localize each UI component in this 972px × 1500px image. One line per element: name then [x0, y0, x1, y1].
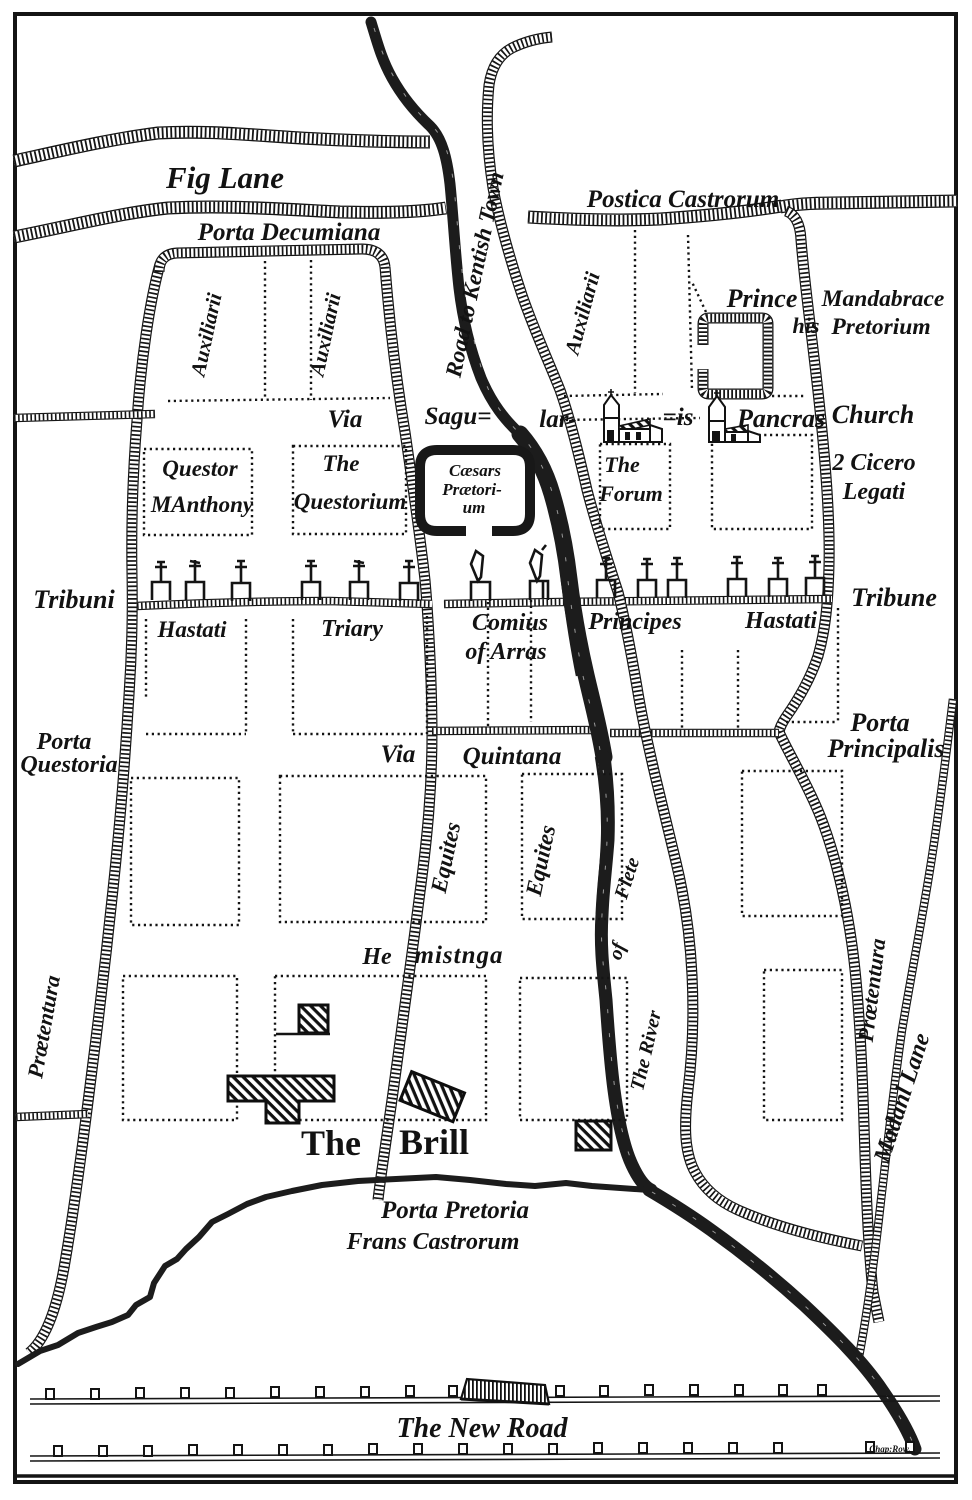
svg-text:Prætori-: Prætori- — [441, 480, 502, 499]
svg-text:Porta: Porta — [849, 708, 909, 737]
svg-text:Tribuni: Tribuni — [33, 585, 115, 614]
svg-text:=is: =is — [663, 404, 694, 431]
svg-text:Porta Pretoria: Porta Pretoria — [380, 1197, 529, 1224]
svg-text:Cæsars: Cæsars — [449, 461, 501, 480]
svg-text:Pretorium: Pretorium — [830, 314, 930, 340]
svg-text:He: He — [361, 944, 392, 970]
svg-text:Prince: Prince — [726, 284, 798, 313]
svg-text:2 Cicero: 2 Cicero — [831, 450, 915, 476]
svg-text:um: um — [463, 498, 486, 517]
svg-text:Sagu=: Sagu= — [424, 403, 491, 430]
svg-text:Frans Castrorum: Frans Castrorum — [346, 1229, 520, 1255]
svg-text:MAnthony: MAnthony — [150, 492, 254, 517]
svg-text:The New Road: The New Road — [396, 1413, 568, 1444]
svg-text:Fig Lane: Fig Lane — [165, 160, 284, 195]
svg-text:Questoria: Questoria — [20, 752, 117, 778]
svg-text:The: The — [322, 451, 359, 476]
svg-text:Church: Church — [832, 400, 914, 429]
svg-text:Brill: Brill — [399, 1122, 469, 1162]
svg-text:Postica Castrorum: Postica Castrorum — [586, 186, 779, 213]
svg-text:Comius: Comius — [472, 610, 548, 636]
svg-text:his: his — [793, 313, 820, 338]
svg-text:Tribune: Tribune — [851, 583, 937, 612]
svg-text:The: The — [301, 1123, 361, 1163]
svg-text:Forum: Forum — [598, 481, 663, 506]
svg-text:Via: Via — [328, 406, 363, 433]
svg-text:Questorium: Questorium — [294, 489, 406, 514]
svg-text:Quintana: Quintana — [463, 743, 562, 770]
svg-text:Pancras: Pancras — [736, 404, 825, 433]
svg-text:Triary: Triary — [321, 616, 383, 642]
svg-text:Questor: Questor — [162, 456, 238, 481]
svg-text:lar-: lar- — [539, 406, 577, 433]
svg-text:Mandabrace: Mandabrace — [821, 286, 945, 312]
svg-text:Porta Decumiana: Porta Decumiana — [197, 219, 381, 246]
svg-text:of Arras: of Arras — [465, 639, 546, 665]
svg-text:Principalis: Principalis — [826, 734, 944, 763]
svg-text:mistnga: mistnga — [415, 942, 504, 969]
svg-text:Legati: Legati — [842, 479, 906, 505]
svg-text:The: The — [604, 452, 640, 477]
svg-text:Principes: Principes — [587, 609, 681, 635]
svg-text:Chap:Row.: Chap:Row. — [869, 1444, 910, 1454]
svg-text:Via: Via — [381, 741, 416, 768]
svg-text:Hastati: Hastati — [744, 608, 817, 634]
svg-text:Hastati: Hastati — [156, 617, 227, 642]
